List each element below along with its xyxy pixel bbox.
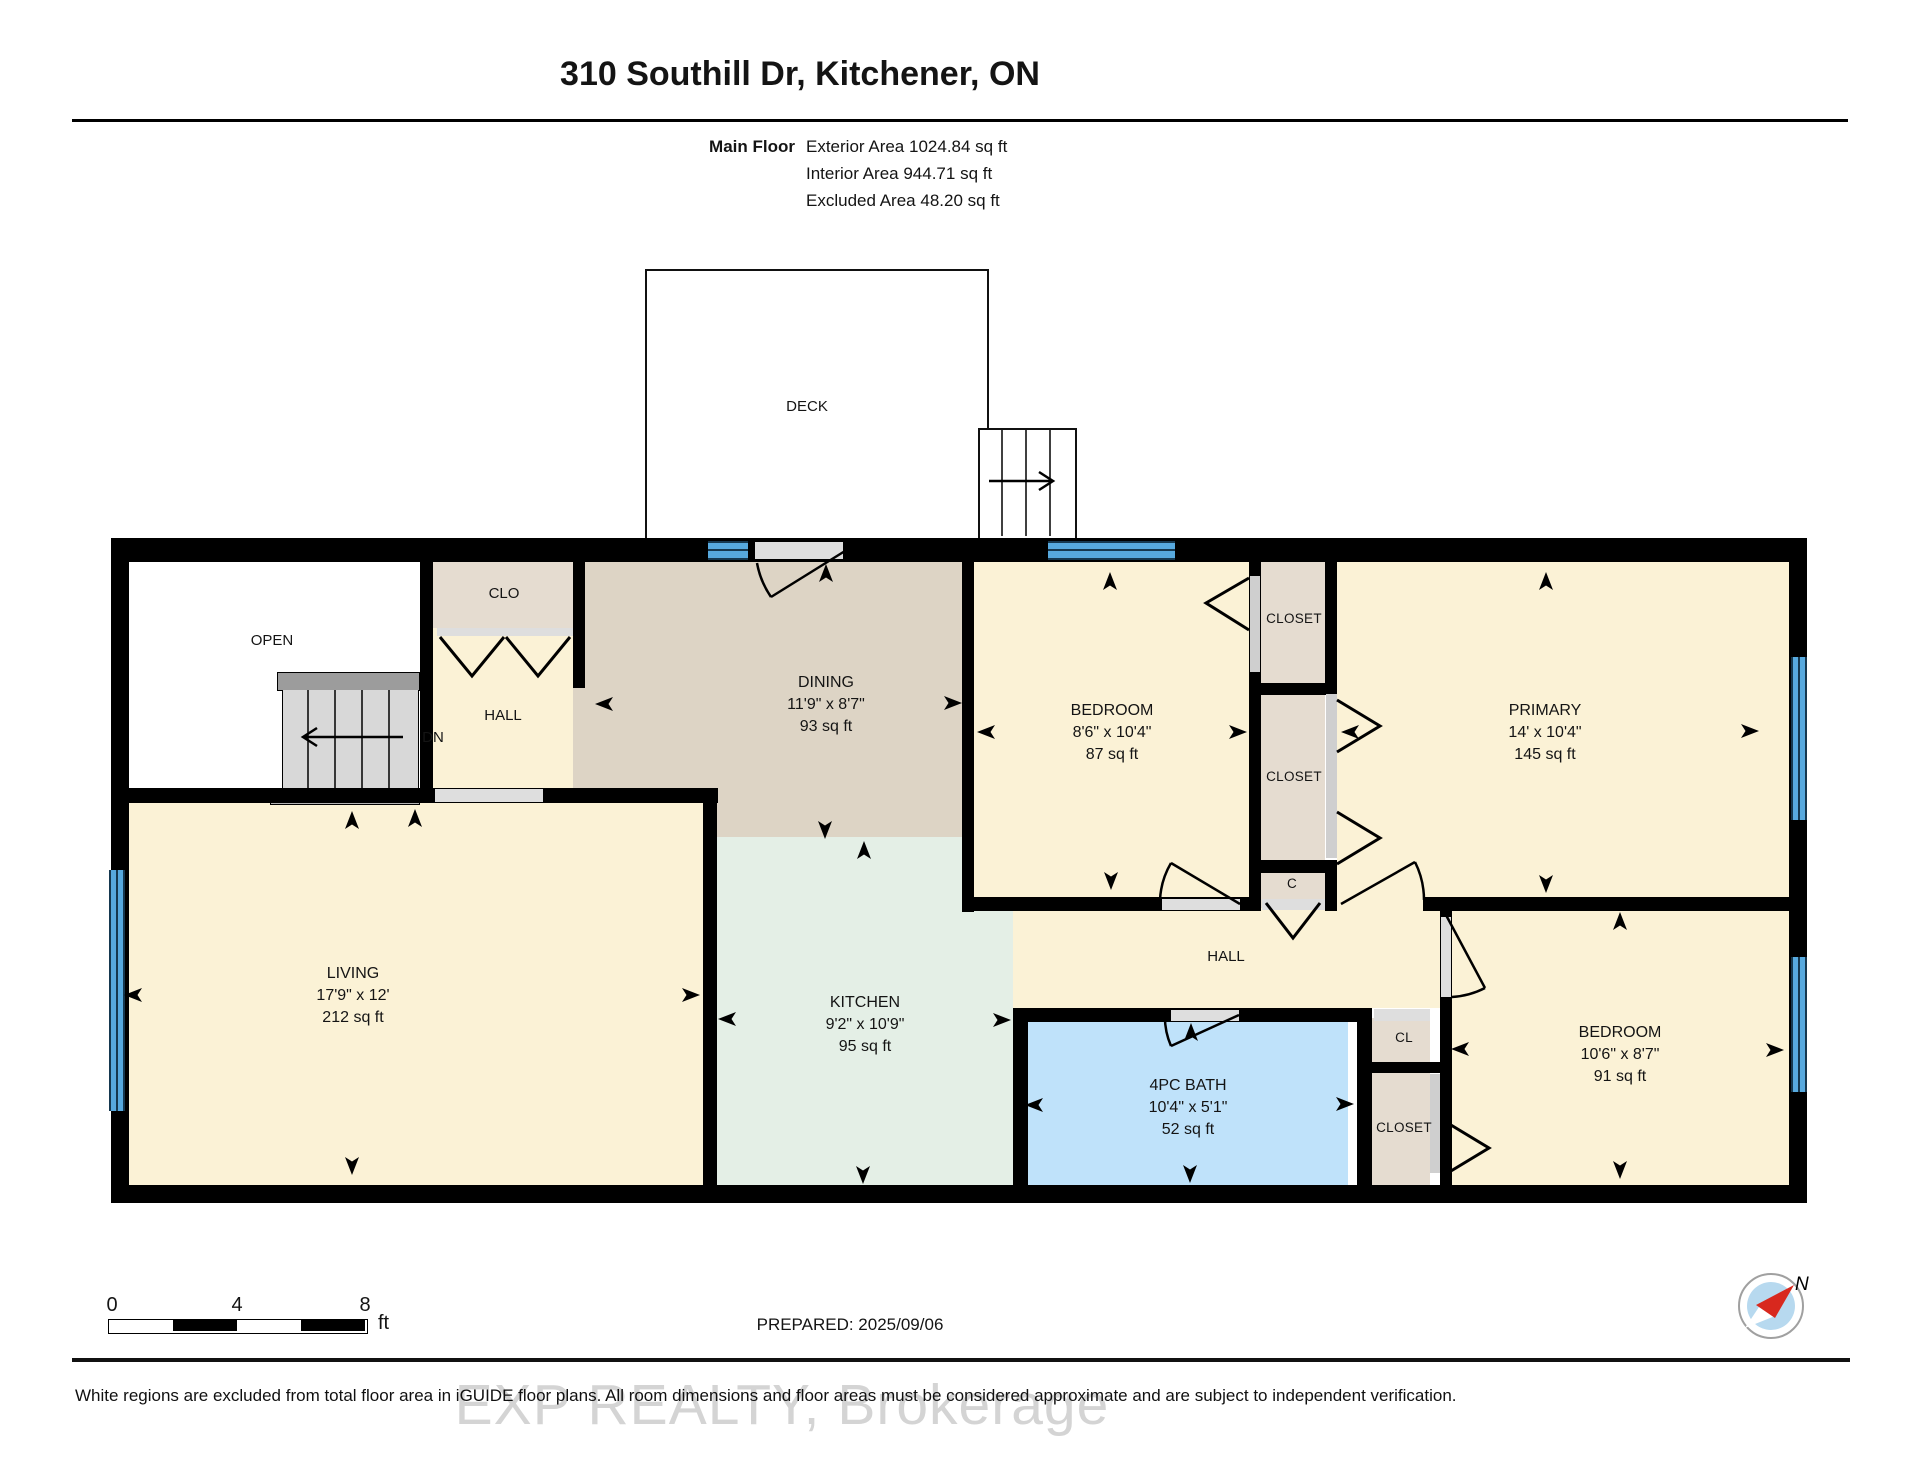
exterior-area-line: Exterior Area 1024.84 sq ft: [806, 137, 1007, 157]
opening-bedroom-top-door: [1162, 899, 1240, 910]
living-dims: 17'9" x 12': [316, 985, 389, 1007]
room-label-kitchen: KITCHEN 9'2" x 10'9" 95 sq ft: [826, 992, 905, 1058]
scale-seg-3: [237, 1320, 301, 1331]
room-label-bedroom-right: BEDROOM 10'6" x 8'7" 91 sq ft: [1579, 1022, 1662, 1088]
room-label-dining: DINING 11'9" x 8'7" 93 sq ft: [787, 672, 865, 738]
title-divider: [72, 119, 1848, 122]
window-bedroom-right: [1791, 957, 1807, 1092]
wall-closet2-bottom: [1249, 860, 1337, 873]
footer-divider: [72, 1358, 1850, 1362]
primary-dims: 14' x 10'4": [1508, 722, 1581, 744]
dining-dims: 11'9" x 8'7": [787, 694, 865, 716]
wall-living-top: [111, 788, 718, 803]
svg-text:N: N: [1795, 1274, 1809, 1295]
bedroom-top-area: 87 sq ft: [1071, 744, 1154, 766]
bedroom-top-dims: 8'6" x 10'4": [1071, 722, 1154, 744]
kitchen-area: 95 sq ft: [826, 1036, 905, 1058]
cl-label: CL: [1395, 1030, 1413, 1045]
excluded-area-line: Excluded Area 48.20 sq ft: [806, 191, 1000, 211]
interior-area-line: Interior Area 944.71 sq ft: [806, 164, 992, 184]
dining-name: DINING: [787, 672, 865, 694]
window-living: [109, 870, 125, 1111]
compass-icon: N: [1733, 1266, 1813, 1346]
wall-bottom: [111, 1185, 1807, 1203]
wall-cl-bottom: [1357, 1062, 1440, 1073]
wall-hall-dining: [573, 562, 585, 688]
wall-bath-left: [1013, 1008, 1028, 1185]
bedroom-top-name: BEDROOM: [1071, 700, 1154, 722]
scale-tick-0: 0: [102, 1294, 122, 1317]
wall-closet-stack-right-upper: [1325, 562, 1337, 683]
room-label-bedroom-top: BEDROOM 8'6" x 10'4" 87 sq ft: [1071, 700, 1154, 766]
opening-bath-door: [1171, 1010, 1239, 1021]
living-floor: [129, 803, 703, 1185]
bedroom-right-area: 91 sq ft: [1579, 1066, 1662, 1088]
scale-bar: [108, 1319, 368, 1334]
floor-plan-sheet: 310 Southill Dr, Kitchener, ON Main Floo…: [0, 0, 1920, 1484]
scale-seg-1: [109, 1320, 173, 1331]
opening-bedroom-right-door: [1441, 917, 1451, 997]
hall-upper-label: HALL: [484, 707, 522, 724]
opening-clo-door: [437, 628, 573, 636]
wall-open-hall: [420, 562, 433, 803]
room-label-living: LIVING 17'9" x 12' 212 sq ft: [316, 963, 389, 1029]
exterior-area-value: 1024.84 sq ft: [909, 137, 1007, 156]
bedroom-right-name: BEDROOM: [1579, 1022, 1662, 1044]
stairs-down: [282, 690, 419, 788]
interior-area-label: Interior Area: [806, 164, 899, 183]
prepared-date: PREPARED: 2025/09/06: [757, 1315, 944, 1335]
disclaimer-text: White regions are excluded from total fl…: [75, 1386, 1457, 1406]
primary-area: 145 sq ft: [1508, 744, 1581, 766]
hall-lower-label: HALL: [1207, 948, 1245, 965]
closet-bedroom-top-label: CLOSET: [1266, 611, 1322, 626]
interior-area-value: 944.71 sq ft: [903, 164, 992, 183]
kitchen-dims: 9'2" x 10'9": [826, 1014, 905, 1036]
excluded-area-value: 48.20 sq ft: [920, 191, 999, 210]
slider-closet-primary: [1326, 694, 1337, 858]
opening-entry-door: [755, 542, 843, 559]
page-title: 310 Southill Dr, Kitchener, ON: [560, 55, 1040, 94]
deck-label: DECK: [786, 398, 828, 415]
room-label-bath: 4PC BATH 10'4" x 5'1" 52 sq ft: [1149, 1075, 1228, 1141]
bath-area: 52 sq ft: [1149, 1119, 1228, 1141]
scale-seg-4: [301, 1320, 365, 1331]
excluded-area-label: Excluded Area: [806, 191, 916, 210]
opening-cl-top: [1374, 1009, 1430, 1021]
wall-bath-right: [1357, 1008, 1372, 1185]
scale-tick-8: 8: [355, 1294, 375, 1317]
floor-label: Main Floor: [610, 137, 795, 157]
open-label: OPEN: [251, 632, 294, 649]
clo-label: CLO: [489, 585, 520, 602]
living-name: LIVING: [316, 963, 389, 985]
closet-primary-label: CLOSET: [1266, 769, 1322, 784]
wall-living-kitchen: [703, 803, 717, 1185]
wall-closet-c-right: [1325, 873, 1337, 911]
bedroom-right-dims: 10'6" x 8'7": [1579, 1044, 1662, 1066]
opening-closet-c: [1262, 899, 1325, 910]
window-dining: [708, 541, 748, 560]
window-primary: [1791, 657, 1807, 820]
scale-unit: ft: [378, 1312, 389, 1335]
entry-steps: [978, 428, 1077, 542]
bath-dims: 10'4" x 5'1": [1149, 1097, 1228, 1119]
wall-top: [111, 538, 1807, 562]
primary-name: PRIMARY: [1508, 700, 1581, 722]
opening-hall-living: [435, 789, 543, 802]
wall-closet1-bottom: [1249, 683, 1337, 695]
dining-area: 93 sq ft: [787, 716, 865, 738]
closet-bedroom-right-label: CLOSET: [1376, 1120, 1432, 1135]
bath-name: 4PC BATH: [1149, 1075, 1228, 1097]
slider-closet-bedroom-top: [1250, 576, 1260, 672]
room-label-primary: PRIMARY 14' x 10'4" 145 sq ft: [1508, 700, 1581, 766]
wall-right: [1789, 538, 1807, 1203]
stairs-dn-label: DN: [422, 729, 444, 746]
exterior-area-label: Exterior Area: [806, 137, 904, 156]
living-area: 212 sq ft: [316, 1007, 389, 1029]
wall-dining-bedroom: [962, 562, 974, 912]
stairs-top-landing: [277, 672, 420, 691]
scale-seg-2: [173, 1320, 237, 1331]
closet-c-label: C: [1287, 876, 1297, 891]
window-bedroom-top: [1048, 541, 1175, 560]
kitchen-name: KITCHEN: [826, 992, 905, 1014]
scale-tick-4: 4: [227, 1294, 247, 1317]
wall-primary-bottom: [1423, 897, 1789, 911]
